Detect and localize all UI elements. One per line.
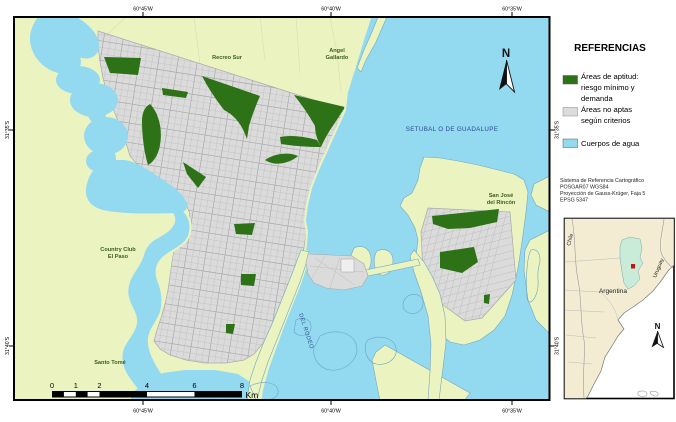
svg-text:N: N <box>655 322 661 331</box>
svg-text:San José: San José <box>489 193 514 199</box>
svg-text:demanda: demanda <box>581 94 613 103</box>
svg-text:según criterios: según criterios <box>581 116 631 125</box>
svg-text:Recreo Sur: Recreo Sur <box>212 55 243 61</box>
svg-text:31°40'S: 31°40'S <box>555 336 561 355</box>
svg-text:Gallardo: Gallardo <box>326 55 349 61</box>
svg-text:6: 6 <box>192 381 196 390</box>
svg-text:60°45'W: 60°45'W <box>133 7 153 13</box>
svg-text:del Rincón: del Rincón <box>487 200 516 206</box>
svg-text:31°35'S: 31°35'S <box>5 120 11 139</box>
svg-text:POSGAR07 WGS84: POSGAR07 WGS84 <box>560 185 609 191</box>
svg-text:Cuerpos de agua: Cuerpos de agua <box>581 139 640 148</box>
svg-text:4: 4 <box>145 381 149 390</box>
svg-text:60°40'W: 60°40'W <box>321 7 341 13</box>
svg-text:Sistema de Referencia Cartográ: Sistema de Referencia Cartográfico <box>560 178 644 184</box>
svg-text:EPSG 5347: EPSG 5347 <box>560 198 588 204</box>
svg-text:31°35'S: 31°35'S <box>555 120 561 139</box>
svg-text:60°35'W: 60°35'W <box>502 7 522 13</box>
svg-text:REFERENCIAS: REFERENCIAS <box>574 43 646 54</box>
svg-text:Country Club: Country Club <box>100 247 136 253</box>
svg-text:Áreas de aptitud:: Áreas de aptitud: <box>581 72 638 81</box>
svg-text:0: 0 <box>50 381 54 390</box>
svg-text:Km: Km <box>246 390 259 400</box>
svg-text:El Paso: El Paso <box>108 254 129 260</box>
svg-text:Angel: Angel <box>329 48 345 54</box>
svg-text:1: 1 <box>74 381 78 390</box>
svg-text:N: N <box>502 48 510 60</box>
svg-text:Proyección de Gauss-Krüger, Fa: Proyección de Gauss-Krüger, Faja 5 <box>560 191 645 197</box>
svg-text:Áreas no aptas: Áreas no aptas <box>581 105 632 114</box>
svg-text:60°40'W: 60°40'W <box>321 409 341 415</box>
svg-text:2: 2 <box>97 381 101 390</box>
svg-text:Santo Tomé: Santo Tomé <box>94 360 126 366</box>
svg-text:SETUBAL O DE GUADALUPE: SETUBAL O DE GUADALUPE <box>406 126 498 133</box>
svg-text:riesgo mínimo y: riesgo mínimo y <box>581 83 635 92</box>
svg-text:31°40'S: 31°40'S <box>5 336 11 355</box>
svg-text:8: 8 <box>240 381 244 390</box>
svg-text:60°45'W: 60°45'W <box>133 409 153 415</box>
svg-text:Argentina: Argentina <box>599 288 628 295</box>
svg-text:60°35'W: 60°35'W <box>502 409 522 415</box>
